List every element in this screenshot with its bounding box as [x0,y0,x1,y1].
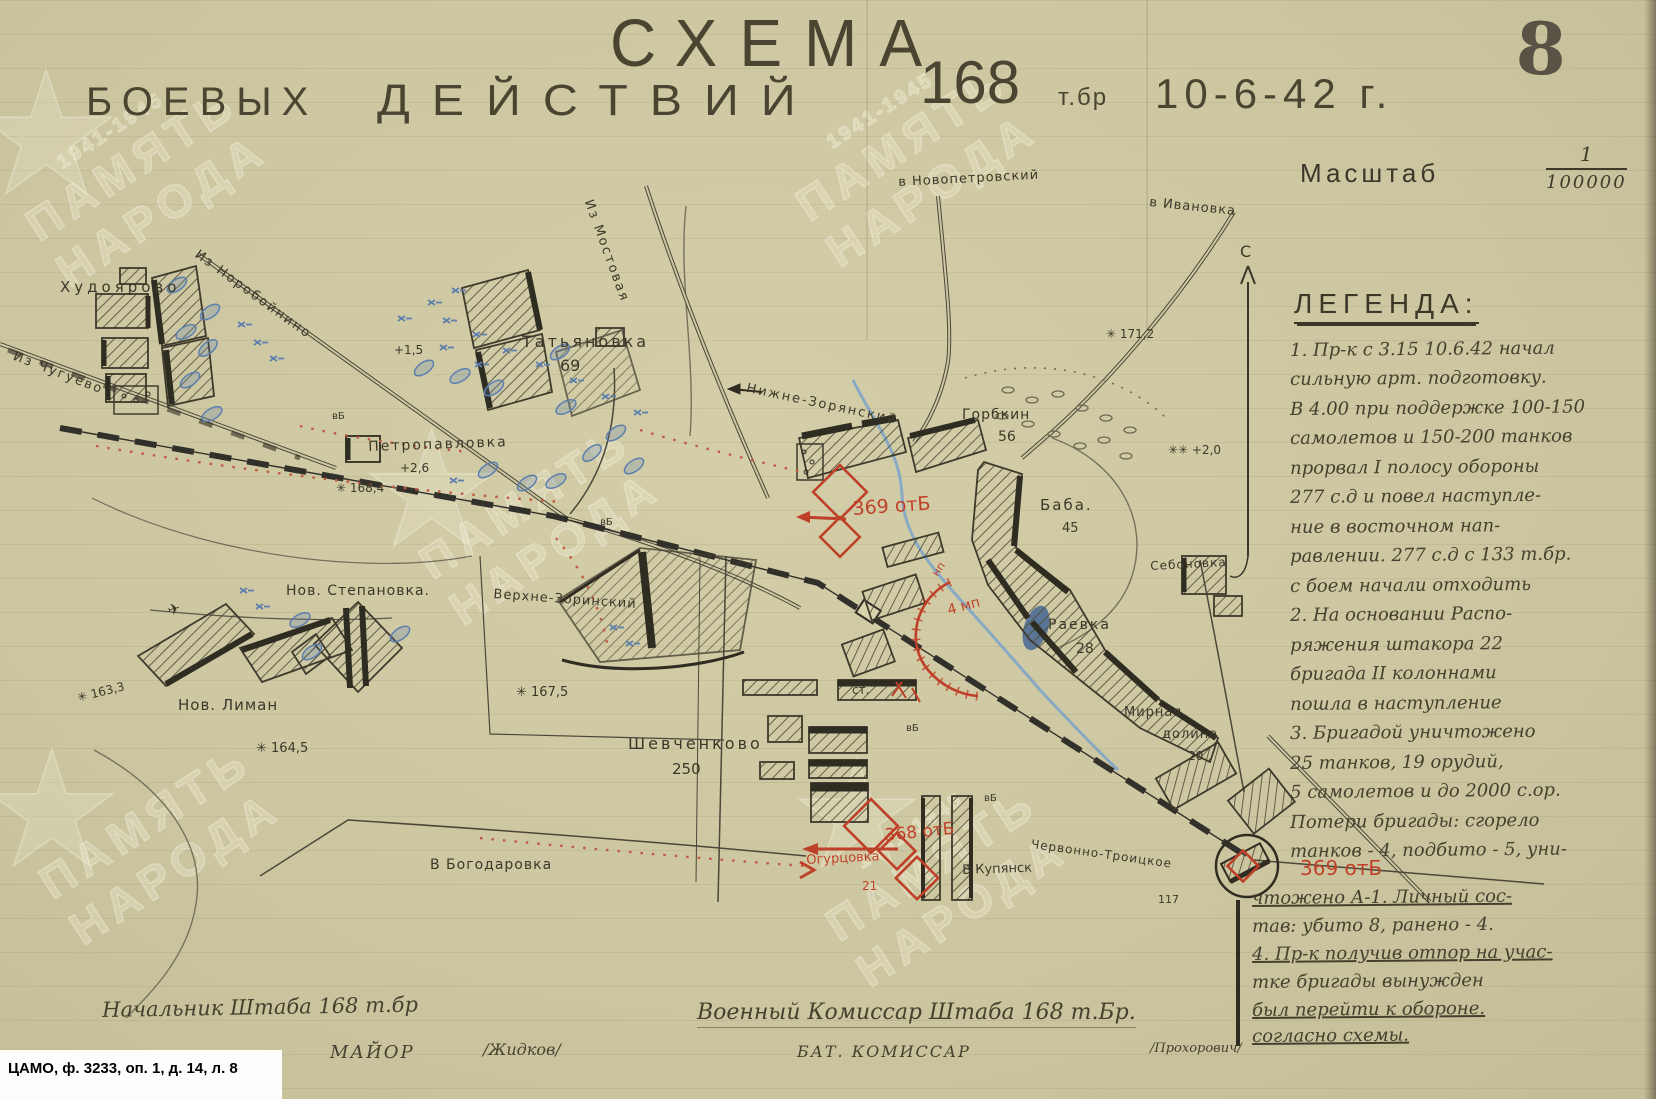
signature-left-name: /Жидков/ [483,1042,561,1058]
signature-right-rank: БАТ. КОМИССАР [797,1044,971,1060]
legend-title: ЛЕГЕНДА: [1294,288,1479,320]
label-shevchenkovo-height: 250 [672,762,701,777]
north-label: С [1240,244,1251,260]
legend-line: 25 танков, 19 орудий, [1290,751,1504,774]
label-station: ст. [852,684,869,696]
scan-edge [1644,0,1656,1099]
signature-right-name: /Прохорович/ [1150,1042,1242,1055]
label-v-bogodarovka: В Богодаровка [430,858,552,872]
label-mirnaya: Мирная [1124,706,1182,719]
label-ogurtsovka: Огурцовка [806,850,880,867]
label-elevation: ✳ 167,5 [516,686,568,699]
north-arrow [1230,266,1255,577]
legend-line: был перейти к обороне. [1252,998,1485,1021]
label-elevation: ✳ 171,2 [1106,328,1154,340]
label-gorbkin: Горбкин [962,408,1030,422]
label-v-kupyansk: В Купянск [962,862,1032,877]
label-nov-liman: Нов. Лиман [178,698,278,713]
label-chervonno-height: 117 [1158,894,1179,905]
label-tatyanovka: Татьяновка [522,334,649,350]
title-unit-number: 168 [920,48,1020,117]
legend-line: равлении. 277 с.д с 133 т.бр. [1290,544,1571,567]
legend-line: Потери бригады: сгорело [1290,810,1540,833]
signature-left-title: Начальник Штаба 168 т.бр [102,994,418,1021]
scale-denominator: 100000 [1546,170,1627,193]
label-vb-marker: вБ [906,724,919,734]
label-vb-marker: вБ [600,518,613,528]
title-unit-suffix: т.бр [1058,84,1108,112]
legend-line: 1. Пр-к с 3.15 10.6.42 начал [1290,338,1555,361]
legend-line: тке бригады вынужден [1252,970,1484,993]
label-vb-marker: вБ [984,794,997,804]
signature-left-rank: МАЙОР [330,1044,415,1062]
legend-line: самолетов и 150-200 танков [1290,426,1573,449]
legend-line: с боем начали отходить [1290,574,1531,597]
title-date: 10-6-42 г. [1155,70,1393,118]
legend-line: 3. Бригадой уничтожено [1290,721,1536,744]
legend-line: пошла в наступление [1290,692,1502,715]
legend-line: прорвал I полосу обороны [1290,456,1539,479]
legend-line: 277 с.д и повел наступле- [1290,485,1541,508]
label-sebonovka: Себоновка [1150,556,1227,572]
legend-line: согласно схемы. [1252,1025,1409,1047]
legend-line: тав: убито 8, ранено - 4. [1252,914,1494,937]
label-elevation: +2,6 [400,462,429,474]
legend-line: 4. Пр-к получив отпор на учас- [1252,941,1553,965]
label-mirnaya-height: 20 [1188,750,1203,762]
legend-line: бригада II колоннами [1290,662,1497,685]
label-ogurtsovka-height: 21 [862,880,877,892]
legend-line: чтожено А-1. Личный сос- [1252,886,1512,909]
label-nov-stepanovka: Нов. Степановка. [286,584,430,598]
label-elevation: +1,5 [394,344,423,356]
legend-line: сильную арт. подготовку. [1290,367,1547,390]
legend-line: ние в восточном нап- [1290,515,1500,538]
signature-right-title: Военный Комиссар Штаба 168 т.Бр. [697,1002,1136,1028]
label-elevation: ✳ 164,5 [256,742,308,755]
title-word-boevykh: БОЕВЫХ [86,80,318,125]
label-369-otb: 369 отБ [1300,858,1382,878]
scale-fraction: 1 100000 [1546,142,1627,193]
label-raevka: Раевка [1048,618,1111,632]
scale-numerator: 1 [1546,142,1627,170]
label-tatyanovka-height: 69 [560,358,580,374]
label-dolina: долина [1162,728,1218,741]
label-elevation: ✳✳ +2,0 [1168,444,1221,456]
title-word-deystviy: ДЕЙСТВИЙ [377,76,818,126]
label-369-otb: 369 отБ [852,495,931,519]
label-shevchenkovo: Шевченково [628,736,763,752]
scale-label: Масштаб [1300,160,1439,186]
legend-line: ряжения штакора 22 [1290,633,1503,656]
legend-line: 2. На основании Распо- [1290,603,1512,626]
label-gorbkin-height: 56 [998,430,1016,444]
archive-reference: ЦАМО, ф. 3233, оп. 1, д. 14, л. 8 [8,1060,238,1077]
legend-line: В 4.00 при поддержке 100-150 [1290,396,1585,420]
map-title: СХЕМА [610,4,944,82]
label-raevka-height: 28 [1076,642,1094,656]
page-number: 8 [1515,5,1568,92]
label-hudoyarovo: Худоярово [60,280,180,295]
label-baba-height: 45 [1062,522,1079,535]
label-vb-marker: вБ [332,412,345,422]
label-elevation: ✳ 168,4 [336,482,384,494]
legend-line: 5 самолетов и до 2000 с.ор. [1290,780,1561,803]
label-baba: Баба. [1040,498,1093,513]
scanned-map-sheet: 1941-1945 ПАМЯТЬ НАРОДА 1941-1945 ПАМЯТЬ… [0,0,1656,1099]
